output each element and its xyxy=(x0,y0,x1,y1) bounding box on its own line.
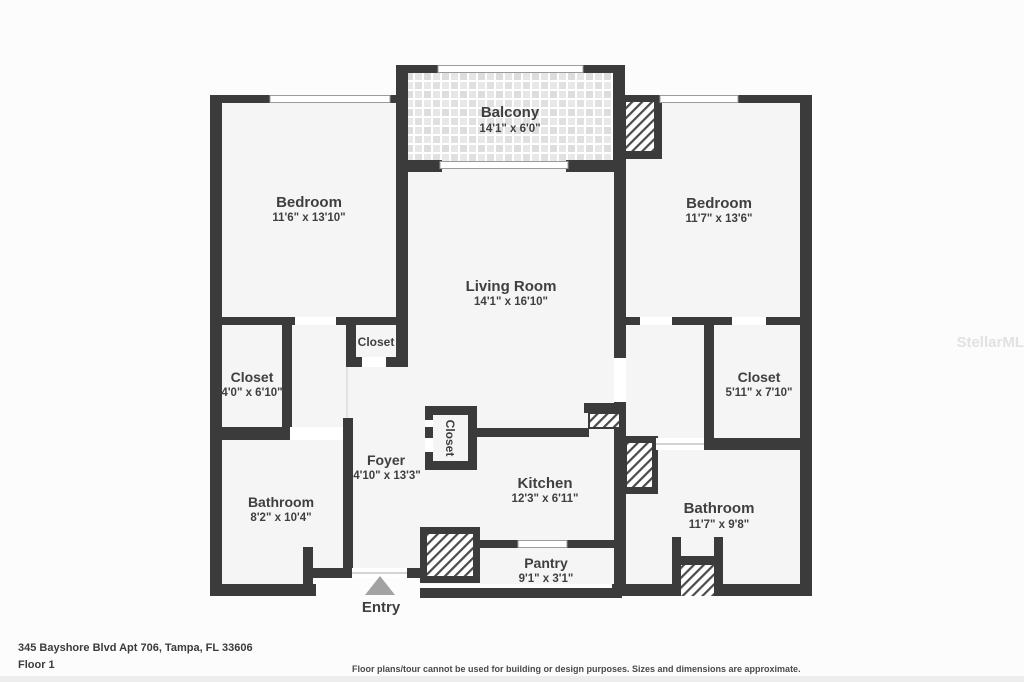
shaft-top-right xyxy=(626,102,654,151)
room-label-living-room: Living Room xyxy=(466,278,557,295)
room-label-bathroom-left: Bathroom xyxy=(248,494,314,510)
room-label-bathroom-right: Bathroom xyxy=(684,500,755,517)
room-label-closet-center: Closet xyxy=(358,335,395,349)
footer-band xyxy=(0,676,1024,682)
footer-address: 345 Bayshore Blvd Apt 706, Tampa, FL 336… xyxy=(18,642,253,654)
window-bedroom-left xyxy=(270,96,390,103)
room-dims-bathroom-left: 8'2" x 10'4" xyxy=(250,512,311,524)
room-dims-closet-left: 4'0" x 6'10" xyxy=(221,387,282,399)
footer-floor-label: Floor 1 xyxy=(18,659,55,671)
window-bedroom-right xyxy=(660,96,738,103)
footer-disclaimer: Floor plans/tour cannot be used for buil… xyxy=(352,664,801,674)
entry-label: Entry xyxy=(362,599,401,616)
room-dims-bathroom-right: 11'7" x 9'8" xyxy=(689,519,750,531)
room-dims-closet-right: 5'11" x 7'10" xyxy=(726,387,793,399)
room-dims-pantry: 9'1" x 3'1" xyxy=(519,573,574,585)
pantry-window xyxy=(518,541,567,548)
room-label-foyer: Foyer xyxy=(367,452,406,468)
kitchen-pass-hatch xyxy=(589,413,620,428)
room-label-closet-right: Closet xyxy=(738,369,781,385)
room-dims-foyer: 4'10" x 13'3" xyxy=(353,470,421,482)
room-label-closet-foyer: Closet xyxy=(443,420,457,457)
balcony-sliding-door xyxy=(440,162,568,169)
balcony-railing xyxy=(438,66,583,73)
footer: 345 Bayshore Blvd Apt 706, Tampa, FL 336… xyxy=(0,642,1024,682)
room-label-bedroom-left: Bedroom xyxy=(276,194,342,211)
room-label-balcony: Balcony xyxy=(481,104,540,121)
room-label-bedroom-right: Bedroom xyxy=(686,195,752,212)
room-dims-living-room: 14'1" x 16'10" xyxy=(474,296,548,308)
room-dims-kitchen: 12'3" x 6'11" xyxy=(512,493,579,505)
floor-plan-canvas: Balcony 14'1" x 6'0" Bedroom 11'6" x 13'… xyxy=(0,0,1024,682)
room-dims-bedroom-right: 11'7" x 13'6" xyxy=(686,213,753,225)
room-dims-balcony: 14'1" x 6'0" xyxy=(479,123,540,135)
shower-hatch xyxy=(681,565,714,596)
utility-closet-hatch xyxy=(427,534,473,576)
room-dims-bedroom-left: 11'6" x 13'10" xyxy=(272,212,345,224)
stellar-mls-watermark: StellarMLS xyxy=(956,334,1024,351)
room-label-pantry: Pantry xyxy=(524,555,568,571)
room-label-closet-left: Closet xyxy=(231,369,274,385)
floor-plan-page: Balcony 14'1" x 6'0" Bedroom 11'6" x 13'… xyxy=(0,0,1024,682)
room-label-kitchen: Kitchen xyxy=(517,475,572,492)
shaft-bathroom-right xyxy=(627,443,652,487)
